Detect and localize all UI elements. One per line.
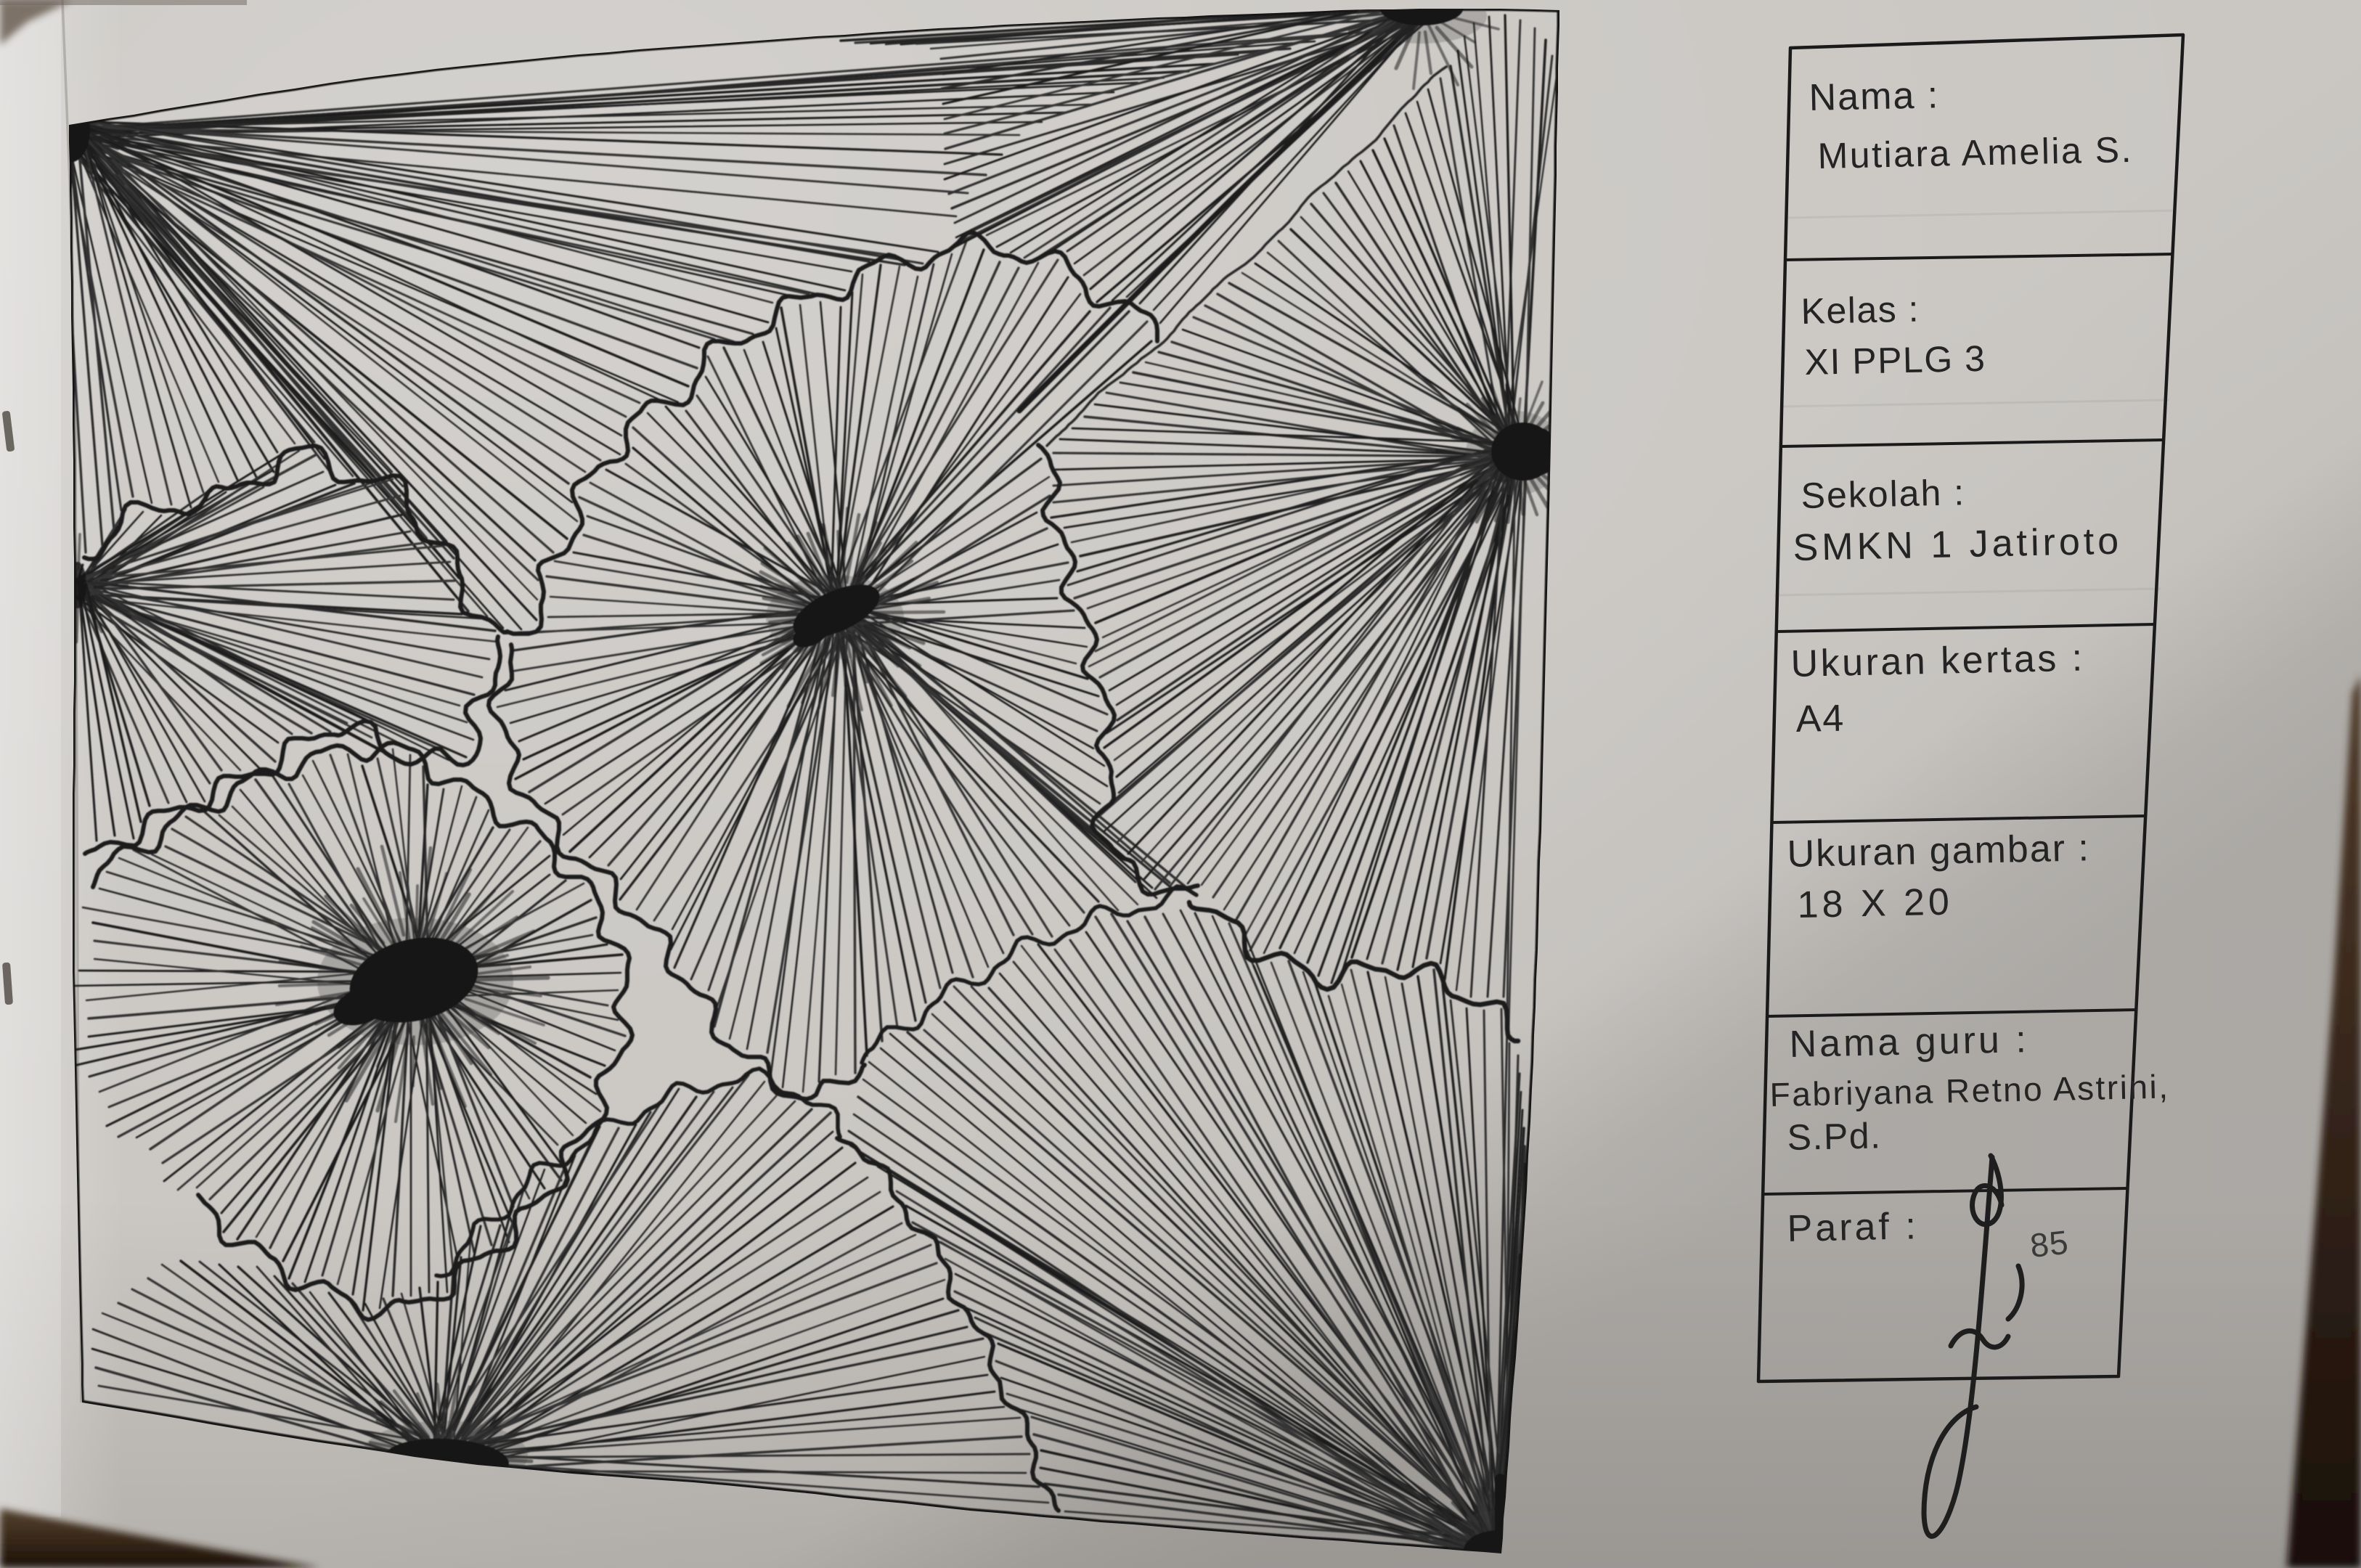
svg-text:Ukuran kertas :: Ukuran kertas : bbox=[1790, 637, 2085, 685]
svg-text:Nama :: Nama : bbox=[1809, 74, 1940, 119]
svg-text:Sekolah :: Sekolah : bbox=[1801, 472, 1966, 516]
svg-text:Nama guru :: Nama guru : bbox=[1789, 1018, 2029, 1066]
svg-text:Kelas :: Kelas : bbox=[1801, 289, 1920, 332]
svg-text:A4: A4 bbox=[1795, 698, 1846, 740]
svg-text:85: 85 bbox=[2028, 1223, 2071, 1265]
svg-text:XI PPLG 3: XI PPLG 3 bbox=[1804, 338, 1986, 383]
svg-text:Mutiara Amelia S.: Mutiara Amelia S. bbox=[1817, 129, 2133, 176]
svg-text:18 X 20: 18 X 20 bbox=[1797, 881, 1953, 926]
svg-text:Paraf :: Paraf : bbox=[1787, 1205, 1919, 1250]
svg-text:S.Pd.: S.Pd. bbox=[1787, 1115, 1882, 1158]
svg-text:SMKN 1 Jatiroto: SMKN 1 Jatiroto bbox=[1793, 520, 2123, 569]
svg-text:Ukuran gambar :: Ukuran gambar : bbox=[1787, 827, 2090, 875]
